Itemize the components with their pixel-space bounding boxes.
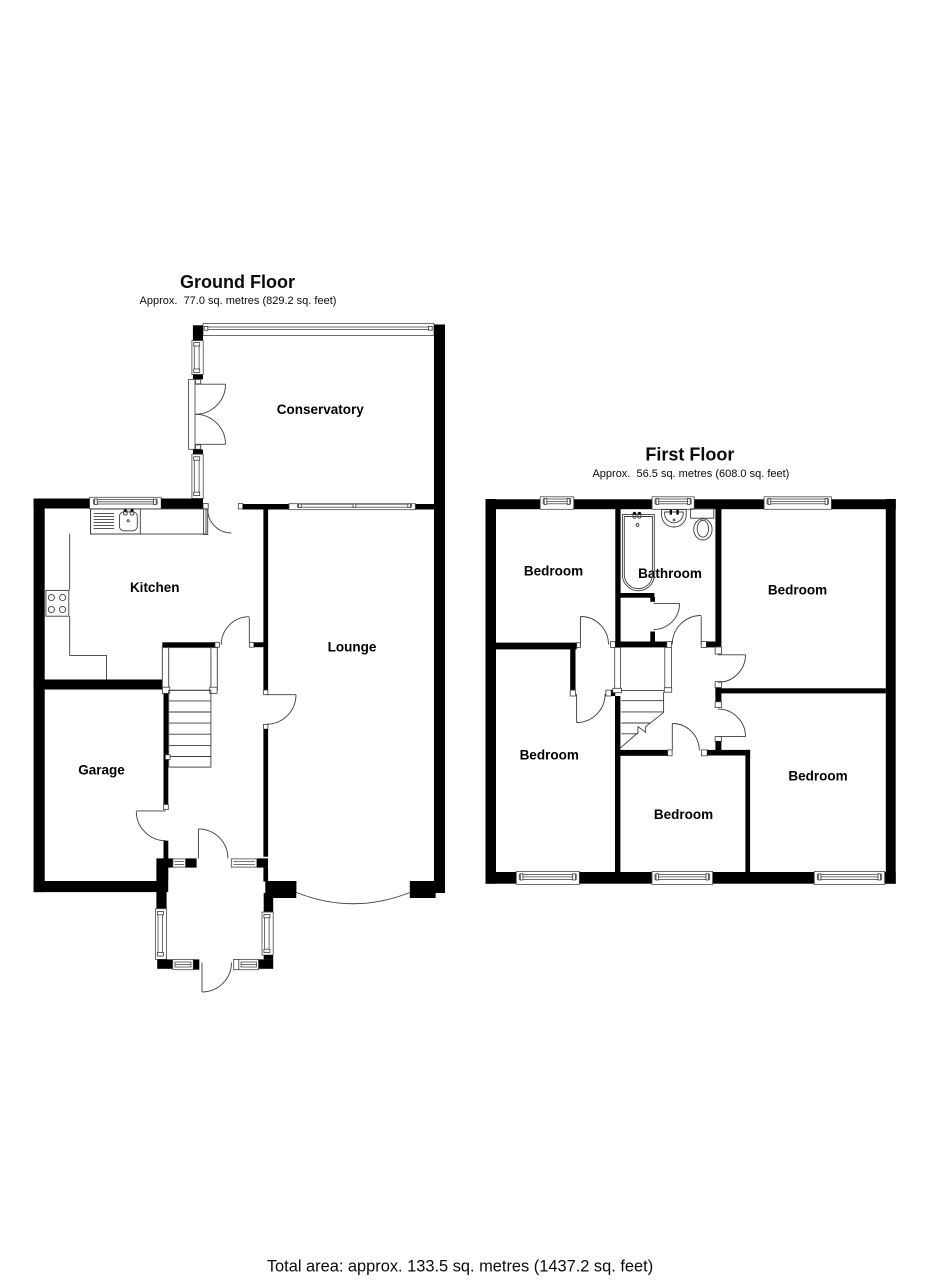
svg-text:Approx. 77.0 sq. metres (829.: Approx. 77.0 sq. metres (829.2 sq. feet) — [140, 295, 337, 307]
svg-text:Garage: Garage — [78, 762, 125, 777]
svg-text:Bedroom: Bedroom — [788, 769, 847, 784]
svg-text:Bedroom: Bedroom — [654, 807, 713, 822]
svg-text:Bedroom: Bedroom — [768, 583, 827, 598]
svg-text:Ground Floor: Ground Floor — [180, 272, 295, 292]
svg-text:Approx. 56.5 sq. metres (608.: Approx. 56.5 sq. metres (608.0 sq. feet) — [592, 468, 789, 480]
svg-text:Kitchen: Kitchen — [130, 580, 180, 595]
svg-text:Bedroom: Bedroom — [524, 564, 583, 579]
svg-text:Conservatory: Conservatory — [277, 402, 365, 417]
svg-text:First Floor: First Floor — [645, 445, 734, 465]
svg-text:Bedroom: Bedroom — [520, 748, 579, 763]
svg-text:Lounge: Lounge — [328, 639, 377, 654]
svg-text:Bathroom: Bathroom — [638, 566, 702, 581]
svg-text:Total area: approx. 133.5 sq.: Total area: approx. 133.5 sq. metres (14… — [267, 1258, 653, 1276]
